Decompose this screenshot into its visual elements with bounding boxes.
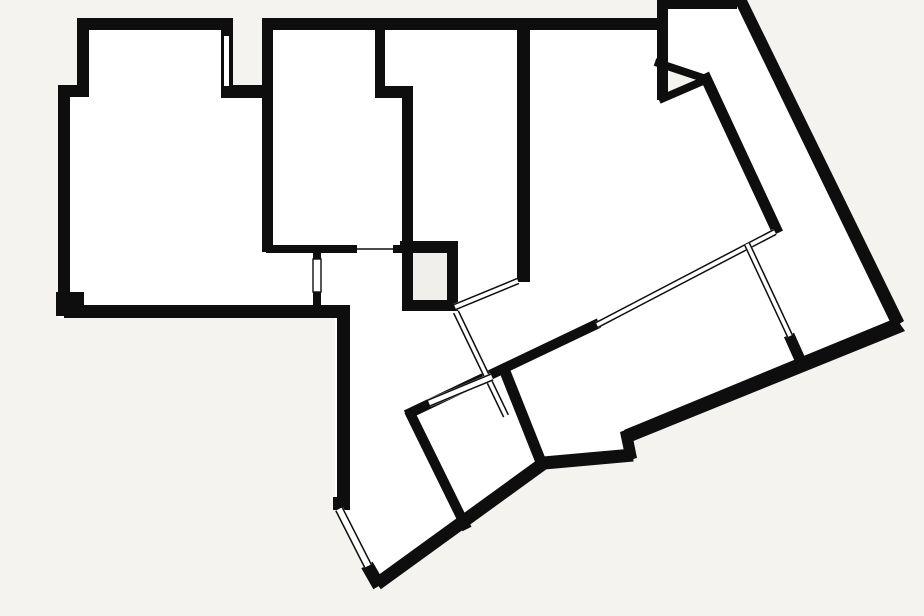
floor-plan-svg	[0, 0, 924, 616]
wall	[77, 18, 233, 30]
wall	[375, 28, 385, 92]
wall	[262, 18, 668, 30]
wall	[657, 0, 737, 9]
wall	[657, 0, 668, 100]
wall	[77, 18, 89, 90]
shaft-room-fill	[413, 253, 447, 300]
wall	[402, 300, 458, 311]
floor-plan-image	[0, 0, 924, 616]
wall	[402, 94, 413, 253]
left-block-wall-slit	[224, 36, 229, 86]
wall	[517, 28, 530, 282]
corridor-door-band	[313, 259, 321, 292]
wall	[58, 85, 70, 310]
wall	[337, 305, 350, 510]
wall	[266, 245, 358, 253]
wall	[64, 305, 350, 318]
wall	[262, 30, 273, 252]
